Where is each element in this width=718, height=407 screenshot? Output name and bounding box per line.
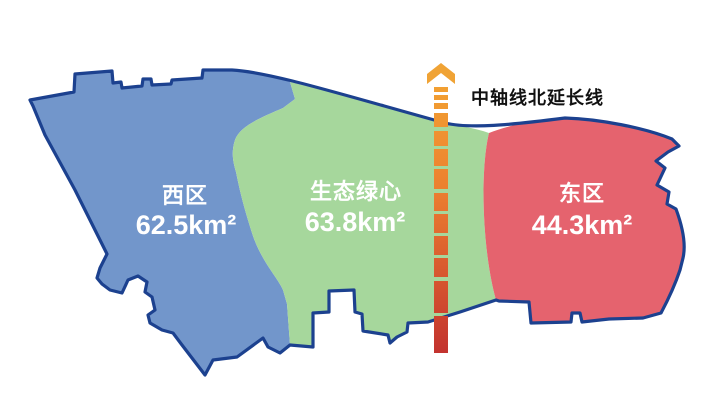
region-green-heart-name: 生态绿心 [310, 179, 402, 204]
region-west-area: 62.5km² [136, 210, 237, 240]
region-west-name: 西区 [162, 183, 208, 208]
axis-arrow-up-icon [427, 63, 455, 84]
map-canvas: 西区 62.5km² 生态绿心 63.8km² 东区 44.3km² 中轴线北延… [0, 0, 718, 407]
region-east-area: 44.3km² [532, 210, 633, 240]
district-map: 西区 62.5km² 生态绿心 63.8km² 东区 44.3km² 中轴线北延… [0, 0, 718, 407]
region-east-name: 东区 [559, 181, 605, 206]
central-axis-label: 中轴线北延长线 [471, 87, 604, 108]
region-green-heart-area: 63.8km² [305, 207, 406, 237]
